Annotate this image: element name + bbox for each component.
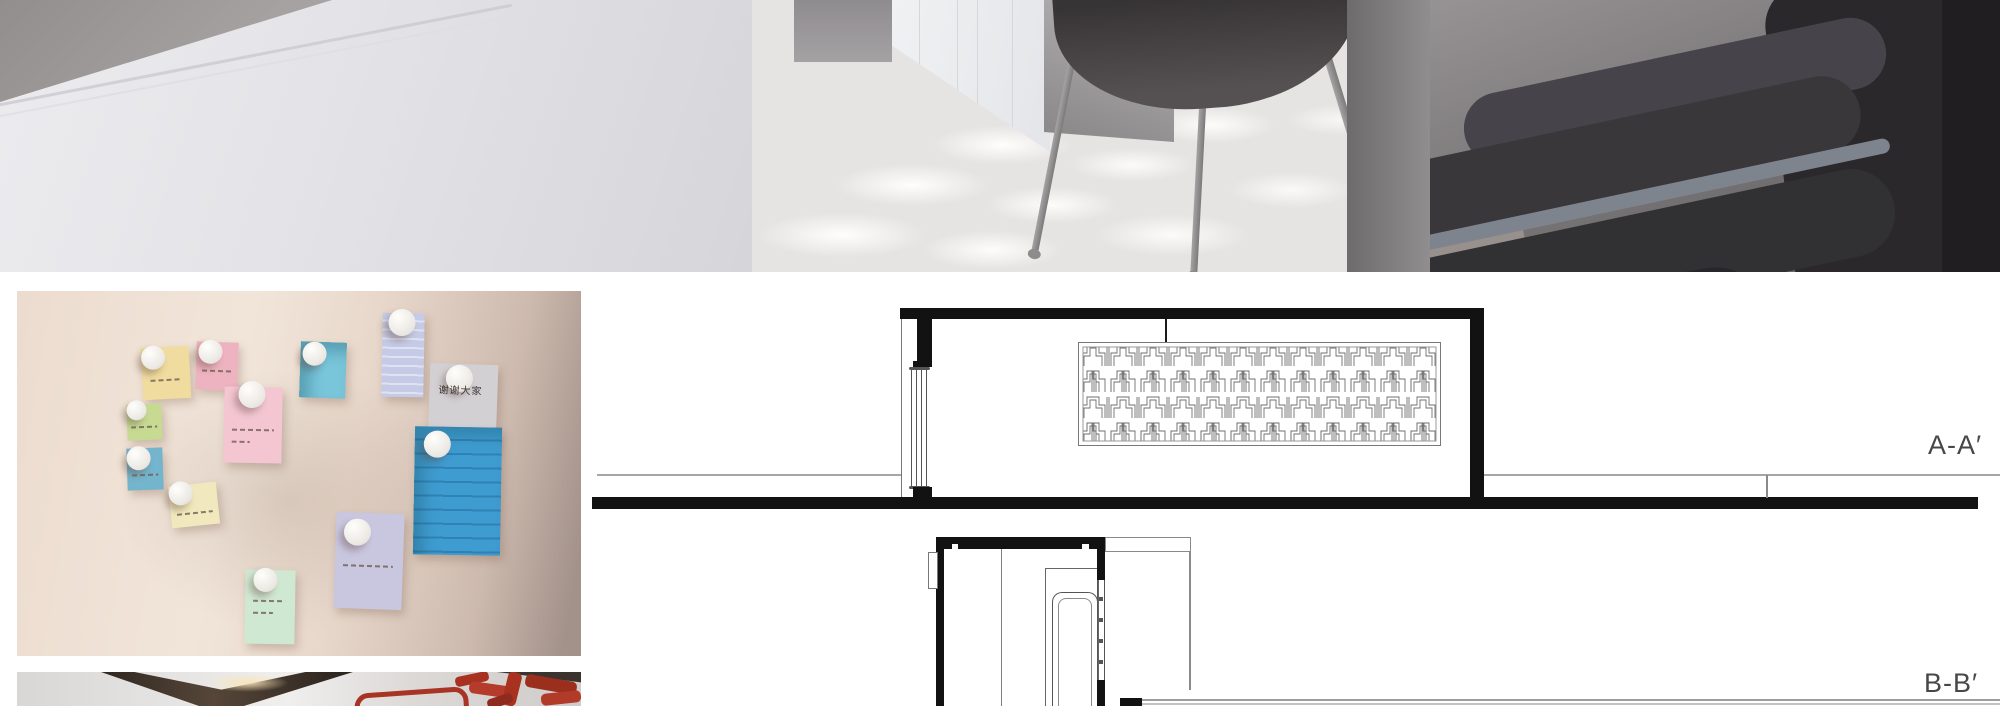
magnet-pin [126, 446, 151, 471]
handwriting-line [131, 426, 157, 429]
section-label-bb: B-B′ [1924, 668, 1978, 699]
aa-floor-slab [592, 497, 1978, 509]
aa-door-cap [909, 367, 930, 370]
handwriting-line [253, 612, 273, 614]
section-label-aa: A-A′ [1928, 430, 1982, 461]
aa-ground-line-right [1484, 474, 2000, 476]
aa-screen-hanger-line [1165, 319, 1167, 343]
aa-wall-face-line [901, 319, 902, 498]
aa-door-head [917, 319, 932, 367]
bb-right-edge-line [1189, 552, 1191, 690]
magnet-pin [168, 480, 194, 506]
note-text: 谢谢大家 [438, 381, 482, 398]
magnet-pin [344, 518, 372, 546]
magnet-pin [238, 381, 265, 408]
magnet-pin [388, 309, 415, 336]
bb-door-leaf-inner [1058, 598, 1092, 706]
aa-ceiling-slab [900, 308, 1484, 319]
magnet-pin [141, 345, 166, 370]
red-tube-stroke [354, 686, 471, 706]
aa-right-wall [1470, 308, 1484, 498]
bb-right-beam-outline [1105, 537, 1191, 552]
magnet-pin [126, 400, 147, 421]
bb-wall-trim [928, 552, 938, 589]
bb-right-wall-bottom [1097, 680, 1105, 706]
sticky-note-teal-small [126, 447, 163, 490]
sticky-note-blue-lined [413, 426, 502, 555]
warm-light-glow [192, 674, 302, 696]
handwriting-line [232, 429, 274, 432]
dark-alcove [794, 0, 892, 62]
sticky-note-mint [244, 570, 295, 645]
magnet-pin [253, 568, 277, 592]
handwriting-line [202, 369, 232, 372]
bb-right-wall-top [1097, 537, 1105, 580]
aa-lattice-screen [1078, 342, 1441, 446]
handwriting-line [150, 378, 182, 382]
bb-ceiling-notch [952, 544, 958, 549]
magnet-pin [302, 341, 327, 366]
red-calligraphy-stroke [540, 690, 581, 706]
sticky-note-pink-small [195, 341, 239, 390]
sticky-note-pale-yellow [168, 482, 220, 529]
red-calligraphy-photo [17, 672, 581, 706]
magnet-pin [198, 339, 223, 364]
handwriting-line [253, 600, 285, 603]
sticky-note-green [126, 403, 162, 440]
aa-ground-tick [1766, 475, 1768, 498]
magnet-pin [424, 430, 451, 457]
sticky-note-periwinkle [381, 313, 424, 398]
handwriting-line [343, 564, 393, 568]
sticky-note-yellow [141, 346, 192, 400]
aa-ground-line-left [597, 474, 901, 476]
bb-ground-line [1142, 699, 2000, 701]
chair-back-dark [1942, 0, 2000, 272]
gray-divider-wall [1347, 0, 1431, 272]
bb-right-wall-glazing [1097, 580, 1105, 680]
sticky-notes-photo: 谢谢大家 [17, 291, 581, 656]
sticky-note-pink-large [223, 386, 282, 463]
aa-door-jamb [911, 369, 928, 488]
stacked-chairs-closeup [1430, 0, 2000, 272]
bb-floor-block [1120, 698, 1142, 706]
bb-ceiling-notch [1082, 544, 1089, 549]
sticky-note-cyan [299, 341, 347, 399]
bb-ceiling-slab [936, 537, 1105, 549]
interior-render-photo [0, 0, 2000, 272]
handwriting-line [232, 441, 250, 443]
handwriting-line [177, 510, 213, 516]
bb-ground-line-light [1142, 703, 2000, 705]
bb-interior-line [1001, 549, 1002, 706]
presentation-board: 谢谢大家 [0, 0, 2000, 706]
sticky-note-lavender [333, 512, 404, 610]
handwriting-line [132, 474, 158, 477]
